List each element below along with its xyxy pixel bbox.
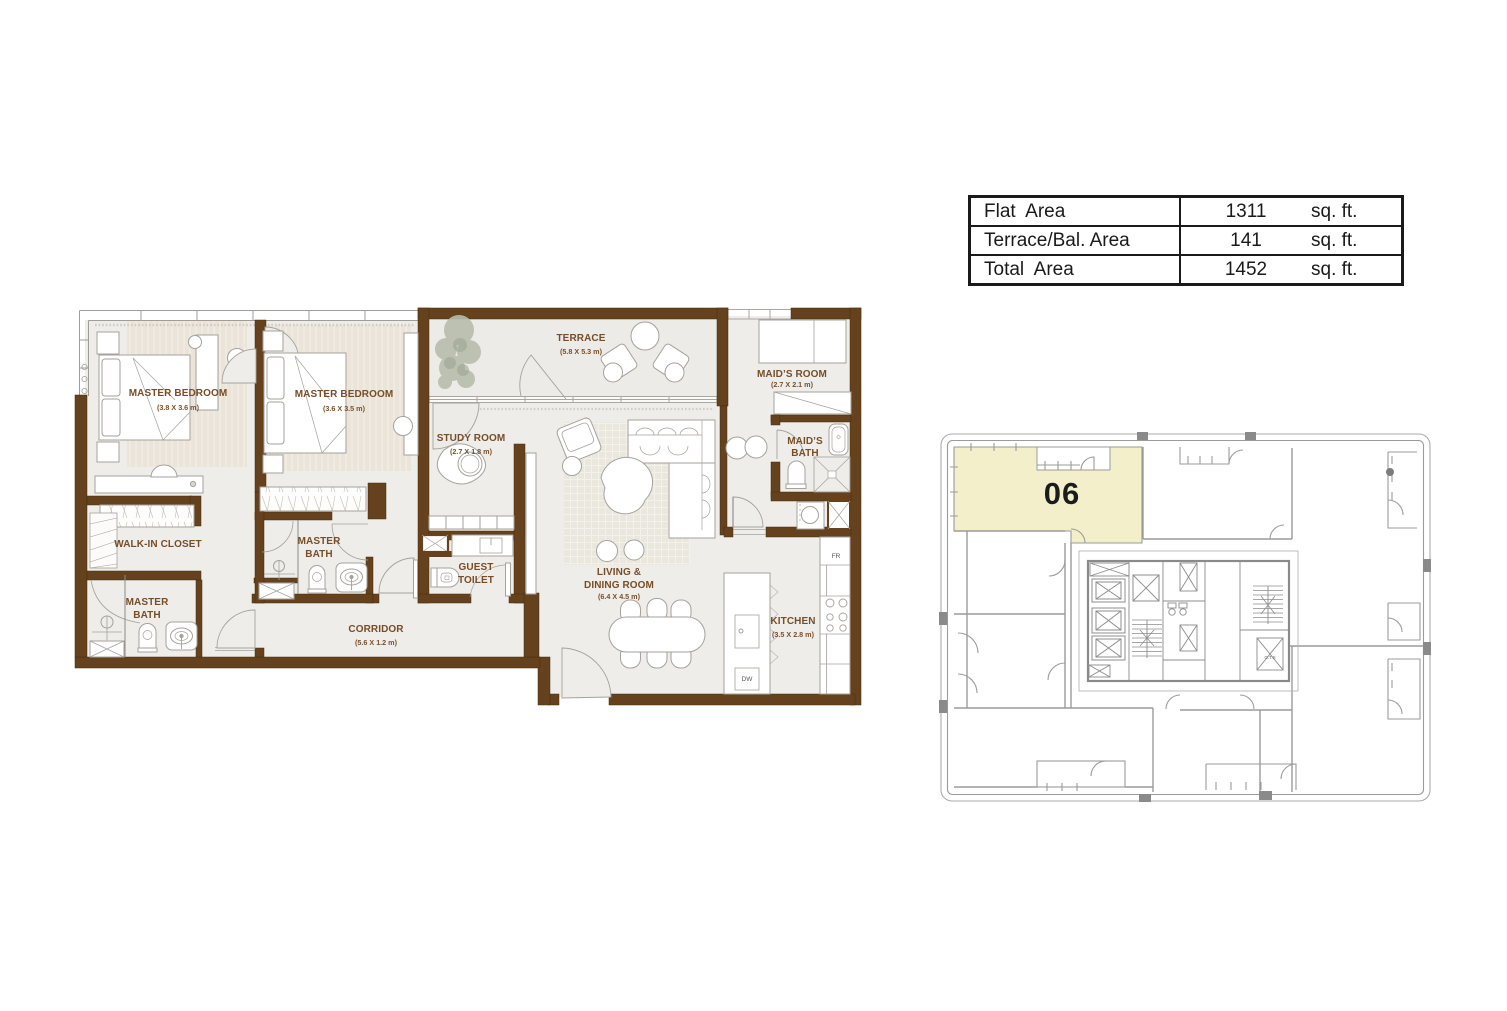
svg-text:(2.7 X 1.8 m): (2.7 X 1.8 m)	[450, 447, 493, 456]
svg-text:(2.7 X 2.1 m): (2.7 X 2.1 m)	[771, 380, 814, 389]
svg-text:(3.5 X 2.8 m): (3.5 X 2.8 m)	[772, 630, 815, 639]
svg-text:(3.6 X 3.5 m): (3.6 X 3.5 m)	[323, 404, 366, 413]
svg-text:TOILET: TOILET	[458, 575, 494, 586]
svg-text:STUDY ROOM: STUDY ROOM	[437, 433, 506, 444]
svg-text:(5.6 X 1.2 m): (5.6 X 1.2 m)	[355, 638, 398, 647]
svg-text:MASTER BEDROOM: MASTER BEDROOM	[295, 389, 394, 400]
svg-text:CORRIDOR: CORRIDOR	[348, 624, 404, 635]
svg-text:G.T.S: G.T.S	[1264, 655, 1275, 660]
svg-text:BATH: BATH	[791, 448, 818, 459]
svg-text:MASTER: MASTER	[298, 536, 341, 547]
svg-text:DW: DW	[742, 676, 754, 683]
svg-text:TERRACE: TERRACE	[556, 333, 605, 344]
svg-text:MASTER: MASTER	[126, 597, 169, 608]
svg-text:BATH: BATH	[305, 549, 332, 560]
svg-text:(3.8 X 3.6 m): (3.8 X 3.6 m)	[157, 403, 200, 412]
svg-text:LIVING &: LIVING &	[597, 567, 641, 578]
svg-text:MAID’S ROOM: MAID’S ROOM	[757, 369, 827, 380]
svg-text:WALK-IN CLOSET: WALK-IN CLOSET	[114, 539, 202, 550]
svg-text:GUEST: GUEST	[459, 562, 494, 573]
svg-text:MASTER BEDROOM: MASTER BEDROOM	[129, 388, 228, 399]
svg-text:(6.4 X 4.5 m): (6.4 X 4.5 m)	[598, 592, 641, 601]
svg-text:DINING ROOM: DINING ROOM	[584, 580, 654, 591]
svg-text:FR: FR	[832, 553, 841, 560]
svg-text:BATH: BATH	[133, 610, 160, 621]
svg-text:MAID’S: MAID’S	[787, 436, 823, 447]
svg-text:KITCHEN: KITCHEN	[770, 616, 815, 627]
svg-text:(5.8 X 5.3 m): (5.8 X 5.3 m)	[560, 347, 603, 356]
svg-text:06: 06	[1044, 476, 1080, 511]
